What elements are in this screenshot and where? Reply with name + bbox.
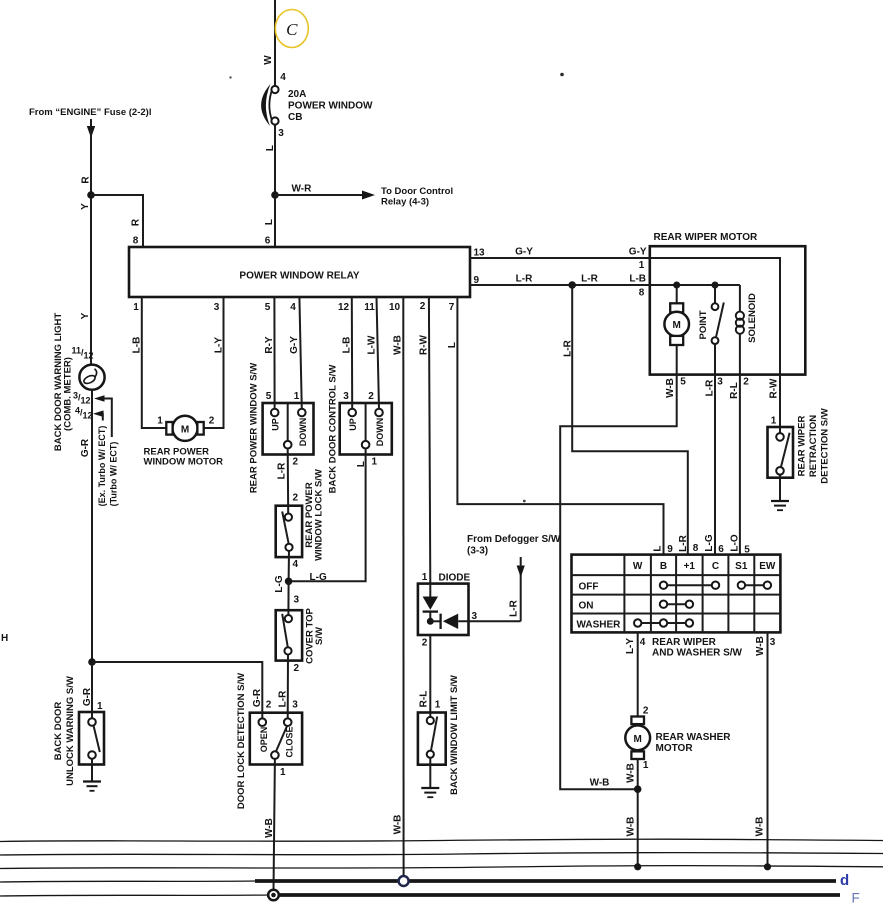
svg-text:W-B: W-B bbox=[665, 378, 676, 398]
svg-text:Y: Y bbox=[80, 203, 91, 210]
svg-text:1: 1 bbox=[435, 700, 441, 711]
svg-text:UP: UP bbox=[348, 418, 358, 431]
svg-text:1: 1 bbox=[133, 302, 139, 313]
svg-text:G-R: G-R bbox=[252, 688, 263, 707]
svg-text:OPEN: OPEN bbox=[259, 727, 269, 753]
svg-text:8: 8 bbox=[133, 236, 139, 247]
svg-text:W-B: W-B bbox=[755, 636, 766, 656]
svg-text:12: 12 bbox=[338, 302, 350, 313]
svg-text:M: M bbox=[181, 424, 189, 435]
svg-text:3: 3 bbox=[214, 302, 220, 313]
svg-text:W-B: W-B bbox=[626, 763, 637, 783]
svg-text:6: 6 bbox=[265, 236, 271, 247]
svg-text:POWER WINDOW: POWER WINDOW bbox=[288, 101, 373, 112]
svg-text:L-G: L-G bbox=[704, 534, 715, 551]
svg-text:G-R: G-R bbox=[80, 438, 91, 457]
svg-text:L-R: L-R bbox=[509, 599, 520, 616]
svg-text:W-B: W-B bbox=[755, 817, 766, 837]
svg-text:3: 3 bbox=[343, 391, 349, 402]
svg-text:3: 3 bbox=[294, 595, 300, 606]
svg-text:2: 2 bbox=[420, 301, 426, 312]
svg-text:UNLOCK WARNING S/W: UNLOCK WARNING S/W bbox=[65, 676, 76, 786]
svg-text:W-B: W-B bbox=[625, 817, 636, 837]
svg-text:C: C bbox=[712, 561, 719, 572]
svg-text:3: 3 bbox=[770, 637, 776, 648]
svg-text:2: 2 bbox=[294, 663, 300, 674]
svg-text:POINT: POINT bbox=[698, 310, 709, 339]
svg-text:L-R: L-R bbox=[678, 534, 689, 551]
svg-text:WINDOW LOCK S/W: WINDOW LOCK S/W bbox=[314, 469, 325, 561]
svg-text:G-Y: G-Y bbox=[515, 247, 533, 258]
svg-text:1: 1 bbox=[372, 457, 378, 468]
svg-text:B: B bbox=[660, 561, 667, 572]
svg-text:11: 11 bbox=[364, 302, 375, 313]
svg-text:W-B: W-B bbox=[590, 778, 610, 789]
svg-text:2: 2 bbox=[293, 457, 299, 468]
svg-text:L-B: L-B bbox=[341, 337, 352, 354]
svg-text:1: 1 bbox=[157, 416, 163, 427]
svg-text:8: 8 bbox=[693, 543, 699, 554]
svg-text:1: 1 bbox=[294, 391, 300, 402]
svg-text:W-B: W-B bbox=[392, 815, 403, 835]
svg-text:2: 2 bbox=[368, 391, 374, 402]
svg-text:L-W: L-W bbox=[366, 335, 377, 354]
svg-text:L: L bbox=[447, 342, 458, 348]
svg-text:From “ENGINE” Fuse (2-2)l: From “ENGINE” Fuse (2-2)l bbox=[29, 107, 151, 118]
svg-text:BACK DOOR CONTROL S/W: BACK DOOR CONTROL S/W bbox=[328, 365, 339, 494]
svg-text:POWER WINDOW RELAY: POWER WINDOW RELAY bbox=[239, 271, 360, 282]
svg-text:REAR WIPER MOTOR: REAR WIPER MOTOR bbox=[654, 232, 758, 243]
svg-text:C: C bbox=[286, 20, 298, 39]
svg-text:W-B: W-B bbox=[264, 818, 275, 838]
svg-text:L-R: L-R bbox=[581, 274, 598, 285]
svg-text:W: W bbox=[263, 55, 274, 65]
svg-text:2: 2 bbox=[743, 377, 749, 388]
svg-text:1: 1 bbox=[422, 572, 428, 583]
svg-text:L: L bbox=[264, 219, 275, 225]
svg-text:S1: S1 bbox=[735, 561, 748, 572]
svg-text:L-R: L-R bbox=[562, 339, 573, 356]
svg-text:R-L: R-L bbox=[418, 691, 429, 708]
svg-text:2: 2 bbox=[643, 706, 649, 717]
svg-text:From Defogger S/W: From Defogger S/W bbox=[467, 534, 561, 545]
svg-text:RETRACTION: RETRACTION bbox=[808, 415, 819, 477]
svg-text:d: d bbox=[840, 872, 849, 889]
svg-text:2: 2 bbox=[422, 638, 428, 649]
svg-text:H: H bbox=[1, 633, 8, 644]
svg-text:L: L bbox=[265, 145, 276, 151]
svg-text:2: 2 bbox=[209, 416, 215, 427]
svg-text:REAR WIPER: REAR WIPER bbox=[652, 637, 717, 648]
svg-text:M: M bbox=[673, 320, 681, 331]
svg-text:13: 13 bbox=[474, 248, 486, 259]
svg-text:20A: 20A bbox=[288, 89, 306, 100]
svg-text:REAR WASHER: REAR WASHER bbox=[656, 732, 732, 743]
svg-text:L-Y: L-Y bbox=[625, 638, 636, 654]
svg-text:1: 1 bbox=[97, 701, 103, 712]
svg-text:G-Y: G-Y bbox=[629, 247, 647, 258]
svg-text:L-O: L-O bbox=[729, 534, 740, 551]
svg-text:SOLENOID: SOLENOID bbox=[747, 293, 758, 343]
svg-text:L-R: L-R bbox=[277, 690, 288, 707]
svg-text:(3-3): (3-3) bbox=[467, 546, 488, 557]
svg-text:L-R: L-R bbox=[276, 462, 287, 479]
svg-text:AND WASHER S/W: AND WASHER S/W bbox=[652, 648, 743, 659]
svg-text:MOTOR: MOTOR bbox=[656, 743, 694, 754]
svg-text:R-L: R-L bbox=[729, 382, 740, 399]
svg-text:DOOR LOCK DETECTION S/W: DOOR LOCK DETECTION S/W bbox=[236, 673, 247, 809]
svg-text:R-Y: R-Y bbox=[264, 336, 275, 354]
svg-text:W: W bbox=[633, 561, 643, 572]
svg-text:5: 5 bbox=[266, 391, 272, 402]
svg-text:3: 3 bbox=[472, 611, 478, 622]
svg-text:4: 4 bbox=[293, 559, 299, 570]
svg-text:R-W: R-W bbox=[768, 378, 779, 399]
svg-text:(Ex. Turbo W/ ECT): (Ex. Turbo W/ ECT) bbox=[97, 426, 107, 507]
svg-text:10: 10 bbox=[389, 302, 401, 313]
svg-text:L: L bbox=[652, 545, 663, 551]
svg-text:4: 4 bbox=[290, 302, 296, 313]
svg-text:To Door Control: To Door Control bbox=[381, 186, 453, 197]
svg-text:1: 1 bbox=[280, 767, 286, 778]
svg-text:DIODE: DIODE bbox=[439, 573, 471, 584]
svg-text:R-W: R-W bbox=[419, 334, 430, 355]
svg-text:CB: CB bbox=[288, 112, 302, 123]
svg-text:REAR POWER WINDOW S/W: REAR POWER WINDOW S/W bbox=[249, 363, 260, 493]
svg-text:BACK DOOR: BACK DOOR bbox=[53, 702, 64, 761]
svg-text:(Turbo W/ ECT): (Turbo W/ ECT) bbox=[109, 442, 119, 507]
svg-text:DOWN: DOWN bbox=[375, 418, 385, 447]
svg-text:W-B: W-B bbox=[392, 335, 403, 355]
svg-text:L-B: L-B bbox=[629, 274, 646, 285]
svg-text:L-R: L-R bbox=[705, 379, 716, 396]
svg-text:G-Y: G-Y bbox=[289, 336, 300, 354]
svg-text:+1: +1 bbox=[684, 561, 696, 572]
svg-text:1: 1 bbox=[771, 416, 777, 427]
svg-text:5: 5 bbox=[680, 377, 686, 388]
svg-text:DOWN: DOWN bbox=[298, 418, 308, 447]
svg-text:7: 7 bbox=[449, 302, 455, 313]
svg-text:ON: ON bbox=[579, 601, 594, 612]
svg-text:3: 3 bbox=[717, 377, 723, 388]
svg-text:UP: UP bbox=[271, 418, 281, 431]
svg-text:4: 4 bbox=[280, 72, 286, 83]
svg-text:8: 8 bbox=[639, 288, 645, 299]
svg-text:4: 4 bbox=[640, 637, 646, 648]
svg-text:G-R: G-R bbox=[82, 687, 93, 706]
svg-text:1: 1 bbox=[643, 760, 649, 771]
svg-text:DETECTION S/W: DETECTION S/W bbox=[819, 408, 830, 484]
svg-text:S/W: S/W bbox=[314, 627, 325, 645]
svg-text:BACK WINDOW LIMIT S/W: BACK WINDOW LIMIT S/W bbox=[449, 675, 460, 795]
svg-text:1: 1 bbox=[639, 260, 645, 271]
svg-text:Relay (4-3): Relay (4-3) bbox=[381, 197, 429, 208]
svg-text:F: F bbox=[852, 891, 860, 906]
svg-text:WINDOW MOTOR: WINDOW MOTOR bbox=[144, 457, 224, 468]
svg-text:OFF: OFF bbox=[579, 582, 599, 593]
svg-text:CLOSE: CLOSE bbox=[284, 726, 294, 757]
svg-text:3: 3 bbox=[278, 128, 284, 139]
svg-text:EW: EW bbox=[759, 561, 776, 572]
svg-text:L-G: L-G bbox=[310, 572, 327, 583]
svg-text:R: R bbox=[81, 176, 92, 184]
svg-text:5: 5 bbox=[265, 302, 271, 313]
svg-text:L-R: L-R bbox=[516, 274, 533, 285]
svg-text:(COMB. METER): (COMB. METER) bbox=[63, 357, 74, 431]
svg-text:Y: Y bbox=[80, 312, 91, 319]
svg-text:L-G: L-G bbox=[274, 575, 285, 592]
svg-text:WASHER: WASHER bbox=[577, 620, 622, 631]
svg-text:2: 2 bbox=[266, 700, 272, 711]
svg-text:M: M bbox=[634, 734, 642, 745]
svg-text:R: R bbox=[131, 218, 142, 226]
svg-text:REAR WIPER: REAR WIPER bbox=[796, 416, 807, 477]
svg-text:3: 3 bbox=[292, 700, 298, 711]
svg-text:2: 2 bbox=[293, 493, 299, 504]
svg-text:W-R: W-R bbox=[292, 184, 313, 195]
